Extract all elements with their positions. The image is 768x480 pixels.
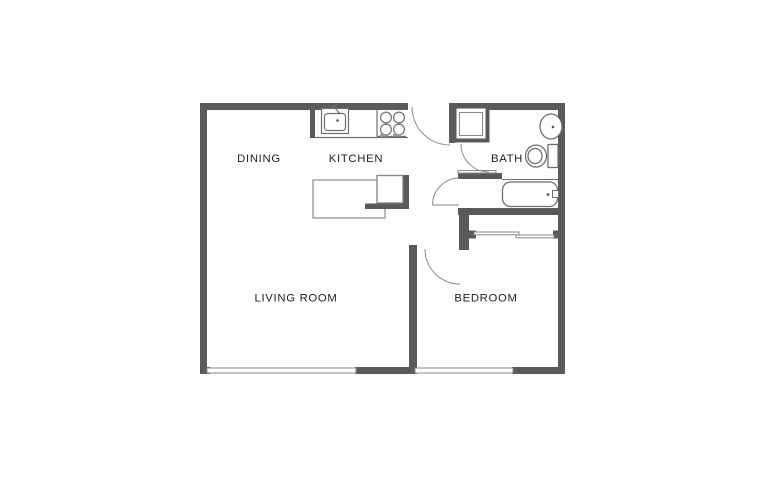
- wall-counter-stub: [310, 110, 315, 138]
- wall-bath-mid: [458, 173, 502, 179]
- stove-burner-3: [381, 124, 392, 135]
- kitchen-sink-basin: [325, 114, 346, 131]
- bath-wall-lip: [458, 171, 496, 174]
- refrigerator: [377, 176, 403, 204]
- wall-top-left: [200, 103, 408, 110]
- wall-bedroom-living: [409, 245, 417, 374]
- toilet-tank: [548, 145, 558, 168]
- room-label-living-room: LIVING ROOM: [254, 293, 337, 305]
- floor-plan-drawing: DINING KITCHEN BATH LIVING ROOM BEDROOM: [0, 0, 768, 480]
- entry-door-swing: [412, 107, 450, 145]
- wall-bottom-right: [512, 367, 565, 374]
- wall-left: [200, 103, 207, 374]
- living-room-window: [207, 368, 356, 373]
- stove-burner-2: [394, 112, 405, 123]
- wall-island-horizontal: [365, 204, 409, 210]
- stove-control-right: [393, 134, 401, 137]
- closet-sliding-door-panel-right: [516, 235, 554, 238]
- stove-burner-1: [381, 112, 392, 123]
- bath-sink-drain: [552, 126, 555, 129]
- wall-bath-bottom: [458, 208, 565, 215]
- room-label-bedroom: BEDROOM: [454, 293, 517, 305]
- room-label-kitchen: KITCHEN: [329, 153, 383, 165]
- walls: [200, 103, 565, 374]
- bath-sink: [540, 114, 562, 139]
- bathtub-faucet-plate: [553, 191, 559, 198]
- room-label-bath: BATH: [491, 153, 523, 165]
- wall-island-vertical: [404, 175, 410, 209]
- kitchen-island-group: [313, 176, 403, 219]
- wall-bottom-middle: [355, 367, 415, 374]
- stove-control-left: [380, 134, 388, 137]
- floor-plan-page: DINING KITCHEN BATH LIVING ROOM BEDROOM: [0, 0, 768, 480]
- shower-stall-group: [455, 107, 488, 141]
- room-label-dining: DINING: [237, 153, 281, 165]
- closet-door-swing: [433, 178, 460, 205]
- bedroom-window: [415, 368, 513, 373]
- bathtub-drain: [547, 193, 550, 196]
- bedroom-door-swing: [425, 249, 460, 284]
- wall-right: [558, 103, 565, 374]
- stove-burner-4: [394, 124, 405, 135]
- kitchen-sink-drain: [336, 119, 339, 122]
- bath-door-swing: [461, 144, 489, 172]
- closet-sliding-door-panel-left: [474, 232, 519, 235]
- toilet-bowl-inner: [528, 149, 542, 164]
- kitchen-island-counter: [313, 180, 385, 218]
